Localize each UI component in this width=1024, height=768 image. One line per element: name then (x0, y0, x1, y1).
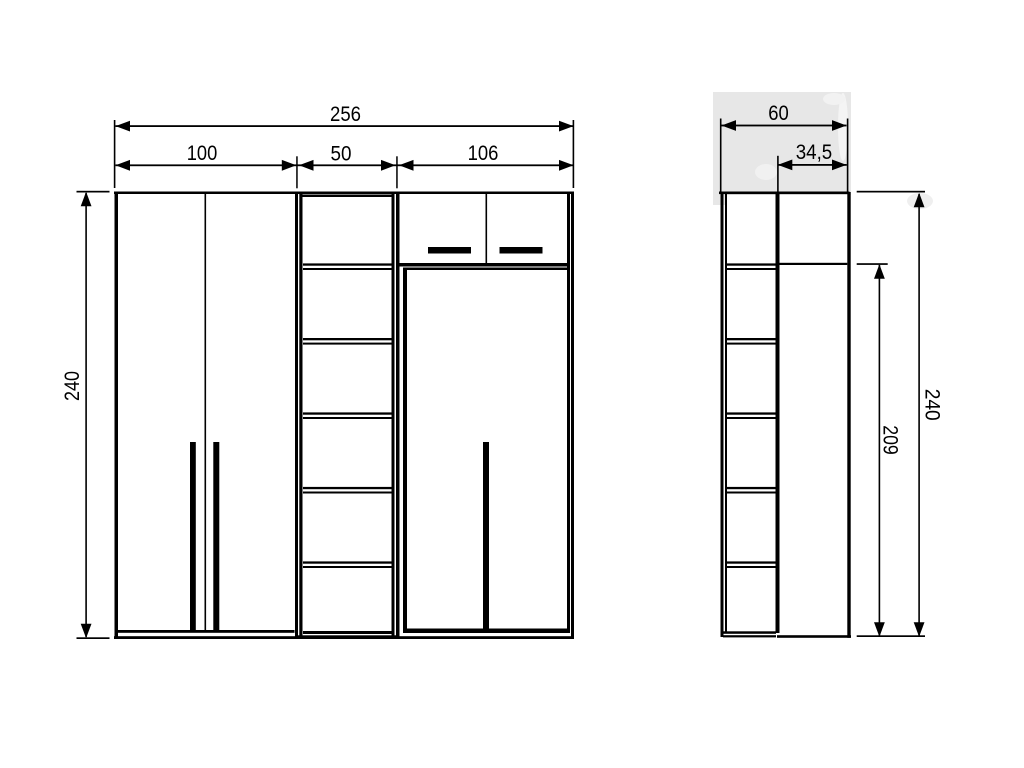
svg-text:256: 256 (330, 102, 361, 126)
svg-text:240: 240 (921, 389, 945, 421)
svg-text:34,5: 34,5 (796, 140, 833, 164)
svg-text:106: 106 (468, 141, 499, 165)
svg-text:50: 50 (331, 142, 352, 166)
svg-text:60: 60 (768, 101, 789, 125)
svg-text:240: 240 (60, 371, 84, 401)
svg-text:209: 209 (879, 425, 903, 455)
svg-text:100: 100 (187, 141, 218, 165)
